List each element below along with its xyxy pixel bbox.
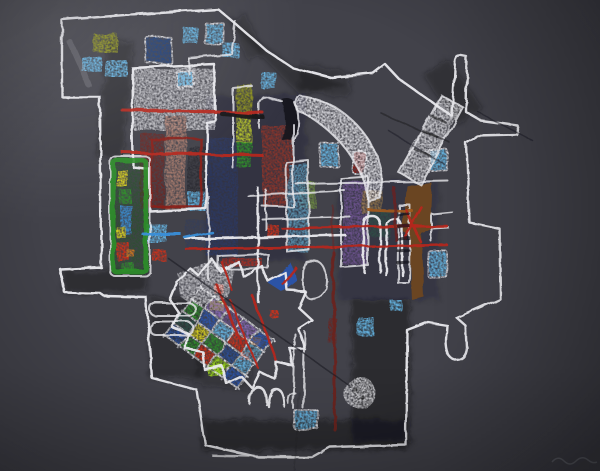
blue-square <box>261 72 276 89</box>
red-square-center <box>267 224 278 237</box>
maroon-v-upper <box>332 205 333 252</box>
salmon-stripe <box>165 116 186 210</box>
vline-208 <box>208 196 209 280</box>
ladder-rung5 <box>398 262 408 263</box>
smudge-left-column <box>97 39 133 159</box>
olive-square <box>94 34 118 53</box>
bar-olive <box>236 84 252 114</box>
darkblue-square <box>146 37 172 64</box>
ladder-rung2 <box>399 226 409 227</box>
chalk-artwork-canvas <box>0 0 600 471</box>
blue-square <box>205 23 224 44</box>
red-bar <box>222 258 262 266</box>
moon-speckle-2 <box>361 396 365 400</box>
teal-column <box>288 164 308 252</box>
signature-squiggle <box>552 458 597 464</box>
blue-square <box>183 27 198 44</box>
blue-square <box>177 72 194 87</box>
fan-dot-red3 <box>270 310 278 318</box>
blue-square <box>223 43 239 58</box>
ladder-rung1 <box>399 214 409 215</box>
small-arc-2 <box>268 389 284 406</box>
blue-square <box>428 251 447 277</box>
ladder-rung4 <box>398 250 408 251</box>
greenbar-yellow <box>117 170 128 187</box>
blob-outline <box>303 261 327 299</box>
ladder-rung3 <box>399 238 409 239</box>
red-square-left <box>152 249 165 261</box>
small-arc-1 <box>250 387 266 404</box>
maroon-v <box>333 252 335 430</box>
moon-speckle-1 <box>354 388 358 392</box>
darkred-v <box>394 188 396 240</box>
tube-line-1 <box>293 334 295 408</box>
blue-square <box>320 143 339 167</box>
artwork-photo <box>0 0 600 471</box>
blue-square <box>105 60 127 77</box>
greenbar-green <box>119 189 131 203</box>
blue-square <box>390 300 402 311</box>
greenbar-yellow2 <box>116 227 126 238</box>
greenbar-orange <box>127 250 135 258</box>
blue-square <box>358 317 374 336</box>
chalk-moon-circle <box>344 377 376 409</box>
